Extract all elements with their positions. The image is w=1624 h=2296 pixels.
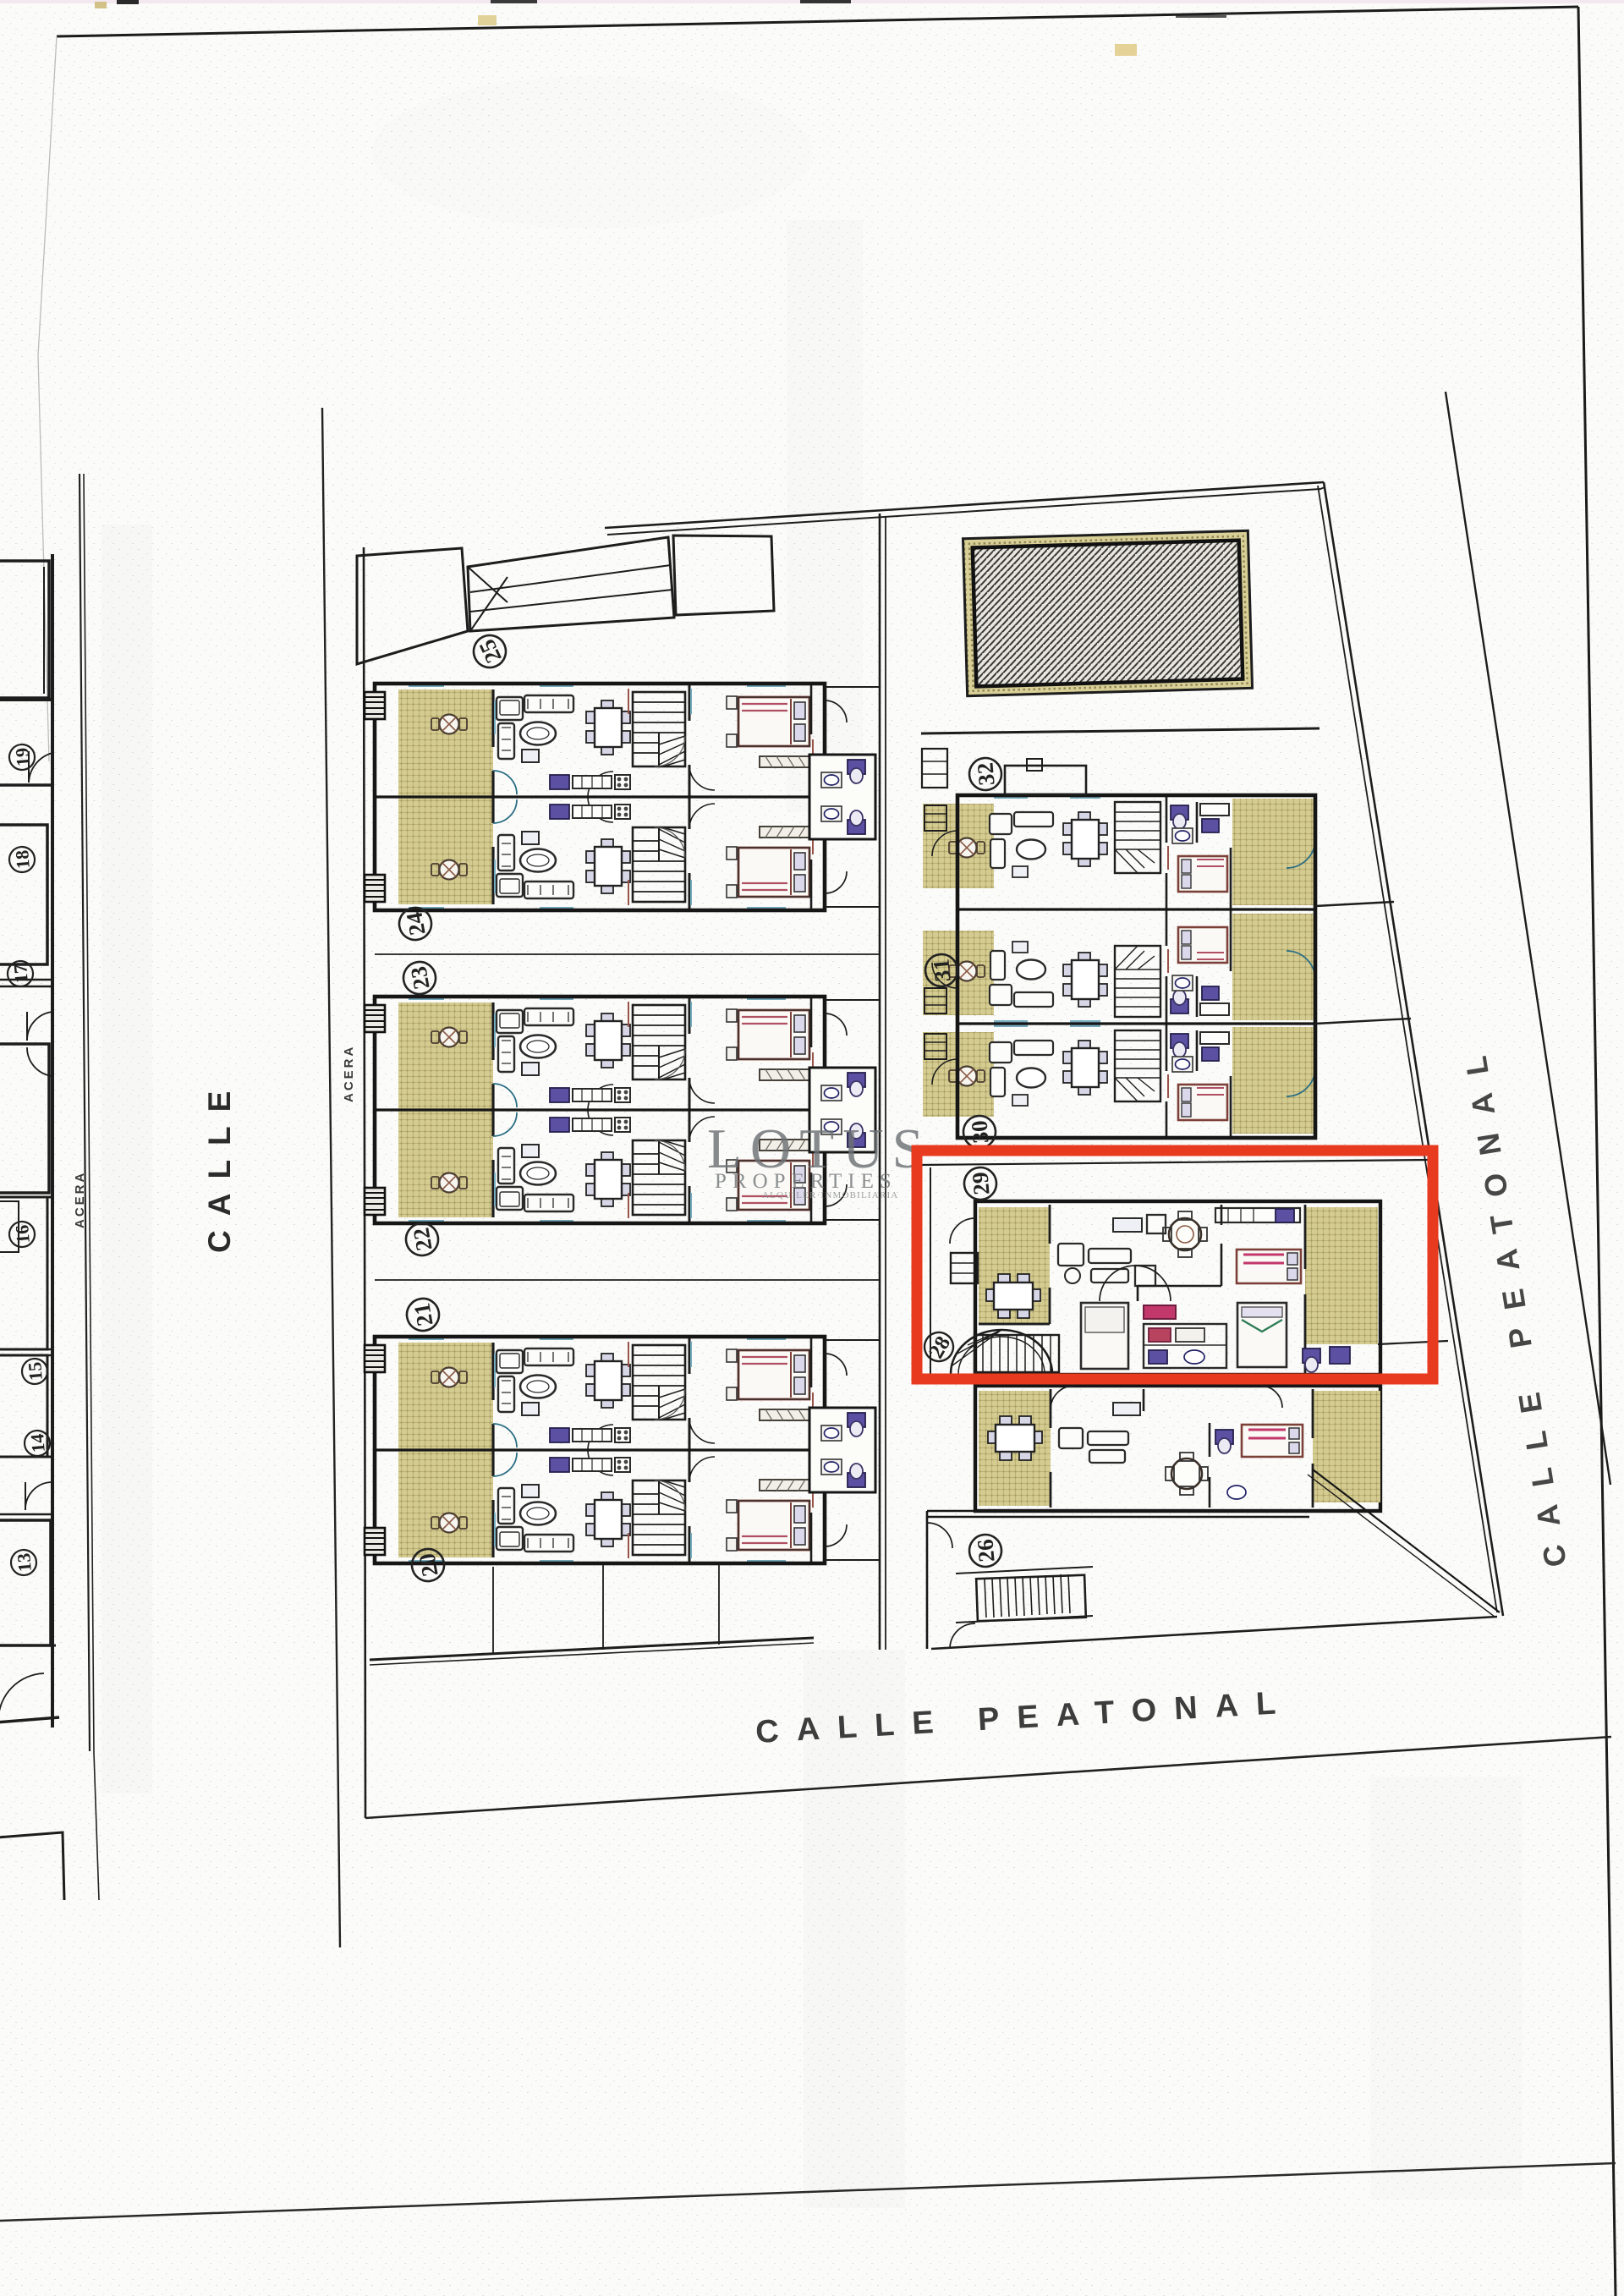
svg-text:23: 23 — [405, 964, 434, 991]
svg-text:ACERA: ACERA — [342, 1045, 356, 1102]
svg-text:PROPERTIES: PROPERTIES — [715, 1170, 897, 1193]
svg-text:22: 22 — [408, 1226, 436, 1253]
svg-text:16: 16 — [11, 1224, 34, 1244]
svg-text:17: 17 — [9, 964, 32, 984]
svg-text:19: 19 — [11, 747, 34, 767]
svg-text:21: 21 — [409, 1301, 437, 1328]
svg-text:24: 24 — [401, 910, 430, 937]
svg-text:32: 32 — [972, 761, 999, 787]
svg-text:31: 31 — [928, 958, 955, 983]
svg-text:13: 13 — [13, 1552, 36, 1573]
svg-text:26: 26 — [972, 1538, 999, 1563]
svg-text:15: 15 — [24, 1361, 47, 1381]
svg-text:20: 20 — [414, 1552, 442, 1579]
svg-text:18: 18 — [11, 849, 34, 870]
svg-text:ACERA: ACERA — [73, 1171, 87, 1228]
svg-text:29: 29 — [967, 1171, 994, 1196]
svg-text:CALLE: CALLE — [202, 1077, 237, 1253]
svg-text:14: 14 — [26, 1433, 49, 1453]
svg-text:30: 30 — [966, 1119, 993, 1145]
svg-text:ALQUILER·INMOBILIARIA: ALQUILER·INMOBILIARIA — [762, 1190, 898, 1200]
